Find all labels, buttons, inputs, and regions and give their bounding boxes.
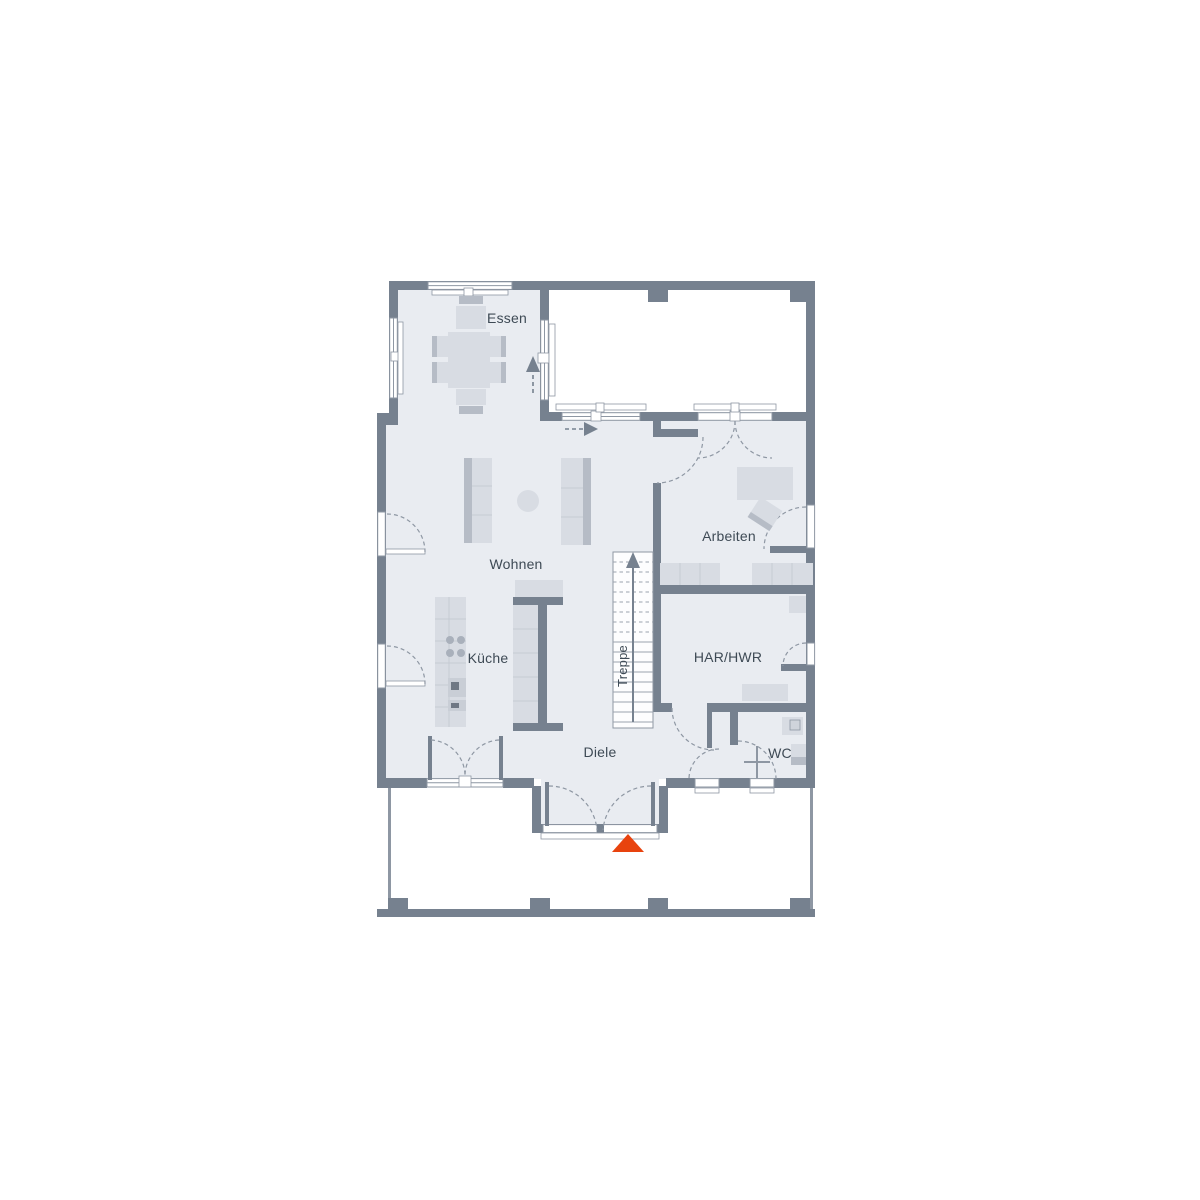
wall-bottom-seg — [503, 778, 534, 788]
wall-left-lower — [377, 413, 386, 788]
wall-terrace-bottom-seg — [640, 412, 698, 421]
window-handle — [538, 353, 549, 363]
wall-bottom-seg — [377, 778, 427, 788]
wall-har-door-stub — [781, 664, 806, 671]
label-diele: Diele — [584, 744, 617, 760]
label-wohnen: Wohnen — [489, 556, 542, 572]
island-cabinets — [513, 605, 540, 723]
window-sill — [398, 322, 403, 394]
wall-terrace-bottom-seg — [772, 412, 815, 421]
cabinet — [789, 596, 806, 613]
terrace-pillar-mid — [648, 281, 668, 302]
window-sill — [549, 324, 555, 396]
sofa-back — [583, 458, 591, 545]
door-threshold — [695, 788, 719, 793]
porch-pillar — [388, 898, 408, 917]
porch-pillar — [790, 898, 810, 917]
sofa — [472, 458, 492, 543]
door-handle — [459, 776, 471, 787]
wall-bottom-seg — [719, 778, 750, 788]
chair-back — [501, 362, 506, 383]
door-handle — [730, 411, 740, 421]
wall-lobby-top — [707, 703, 806, 712]
label-kueche: Küche — [468, 650, 509, 666]
sofa — [561, 458, 583, 545]
window-wc — [750, 779, 774, 787]
desk — [737, 467, 793, 500]
chair-back — [459, 406, 483, 414]
chair — [456, 389, 486, 405]
chair-back — [501, 336, 506, 357]
island-cap-top — [513, 597, 563, 605]
door-leaf — [386, 681, 425, 686]
door-arbeiten-right — [807, 505, 815, 548]
sofa-back — [464, 458, 472, 543]
wall-arbeiten-door-stub — [770, 546, 806, 553]
appliance-door — [451, 703, 459, 708]
door-handle — [591, 411, 601, 421]
terrace-pillar-corner — [790, 281, 812, 302]
island-sideboard — [515, 580, 563, 597]
window-tick — [464, 288, 473, 296]
window-tick — [596, 403, 604, 412]
label-arbeiten: Arbeiten — [702, 528, 756, 544]
cabinet — [742, 684, 788, 701]
label-essen: Essen — [487, 310, 527, 326]
door-leaf — [545, 782, 549, 826]
floor-plan-page: Essen Wohnen Küche Treppe Diele Arbeiten… — [0, 0, 1200, 1200]
door-leaf — [386, 549, 425, 554]
entry-door-left — [543, 825, 597, 833]
chair-back — [432, 362, 437, 383]
wall-diele-stub — [653, 703, 672, 712]
toilet-seat — [791, 757, 806, 765]
cabinet-row — [752, 563, 813, 585]
coffee-table — [517, 490, 539, 512]
wall-wc-divider — [730, 712, 738, 745]
porch-pillar — [530, 898, 550, 917]
entry-threshold — [541, 833, 659, 839]
porch-bottom-edge — [377, 909, 815, 917]
porch-pillar — [648, 898, 668, 917]
island-cap-bottom — [513, 723, 563, 731]
label-har-hwr: HAR/HWR — [694, 649, 762, 665]
wall-arbeiten-har — [653, 585, 815, 594]
label-treppe: Treppe — [615, 645, 630, 687]
door-leaf — [651, 782, 655, 826]
staircase — [613, 552, 653, 728]
wall-lobby-thin — [707, 712, 712, 748]
wall-arbeiten-top-stub — [657, 429, 698, 437]
porch-left-edge — [388, 788, 391, 910]
chair-back — [432, 336, 437, 357]
window-sill — [750, 788, 774, 793]
floor-plan: Essen Wohnen Küche Treppe Diele Arbeiten… — [0, 0, 1200, 1200]
door-left-kueche — [378, 644, 386, 688]
door-south-lobby — [695, 779, 719, 787]
porch-right-edge — [810, 788, 813, 910]
label-wc: WC — [768, 745, 792, 761]
sink-basin — [790, 720, 800, 730]
wall-bottom-seg — [774, 778, 815, 788]
entry-center-post — [597, 824, 604, 833]
island-wall — [538, 605, 547, 723]
dining-table — [448, 332, 490, 388]
oven-door — [451, 682, 459, 690]
window-tick — [731, 403, 739, 412]
wall-bottom-seg — [666, 778, 695, 788]
cabinet-row — [660, 563, 720, 585]
entry-door-right — [603, 825, 657, 833]
wall-terrace-bottom-seg — [540, 412, 562, 421]
chair-back — [459, 296, 483, 304]
door-har-right — [807, 643, 815, 665]
door-leaf — [499, 736, 503, 780]
chair — [456, 306, 486, 329]
door-leaf — [428, 736, 432, 780]
door-left-wohnen — [378, 512, 386, 556]
